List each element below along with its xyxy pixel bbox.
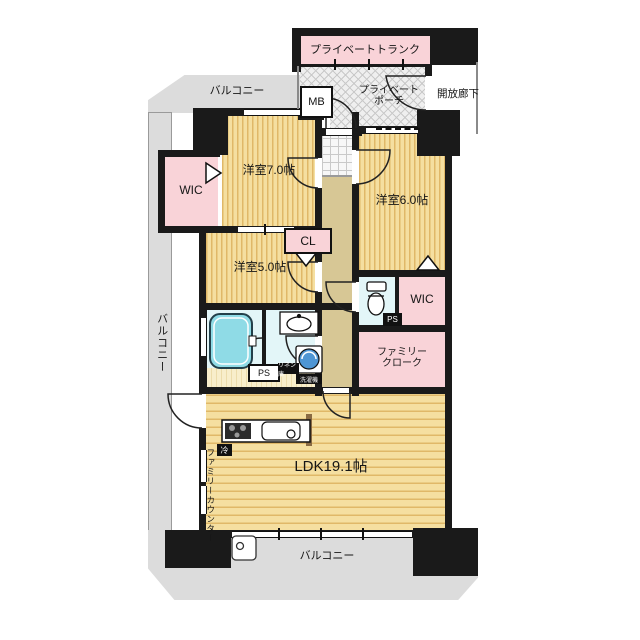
mb-label: MB bbox=[308, 96, 325, 108]
kitchen-counter-edge bbox=[306, 414, 312, 446]
column bbox=[430, 28, 478, 65]
label-balcony-top: バルコニー bbox=[206, 85, 268, 98]
room-genkan-tile bbox=[322, 130, 352, 176]
label-porch-2: ポーチ bbox=[350, 96, 428, 108]
ps-lower-label: PS bbox=[258, 368, 270, 378]
wall bbox=[158, 150, 220, 157]
washer-label: 洗濯機 bbox=[300, 375, 318, 384]
ps-upper-box: PS bbox=[383, 313, 402, 326]
label-family-counter: ファミリーカウンター bbox=[205, 448, 215, 536]
wall bbox=[352, 270, 452, 277]
fridge-label: 冷 bbox=[221, 445, 229, 456]
column bbox=[165, 530, 231, 568]
floor-plan: MB CL PS PS リネン庫 洗濯機 冷 プライベートトランク バルコニー … bbox=[0, 0, 640, 640]
cl-box: CL bbox=[284, 228, 332, 254]
column bbox=[413, 528, 478, 576]
washer-box-label: 洗濯機 bbox=[296, 374, 322, 384]
porch-boundary-dashed bbox=[376, 128, 420, 130]
window bbox=[200, 318, 207, 356]
label-bedroom-6: 洋室6.0帖 bbox=[366, 194, 438, 208]
wall bbox=[158, 150, 165, 233]
column bbox=[193, 108, 228, 155]
label-balcony-left: バルコニー bbox=[155, 298, 168, 388]
wall bbox=[300, 64, 430, 67]
wall bbox=[262, 310, 266, 368]
label-balcony-bottom: バルコニー bbox=[292, 550, 362, 563]
label-bedroom-5: 洋室5.0帖 bbox=[224, 261, 296, 275]
wall bbox=[352, 325, 452, 332]
label-wic-left: WIC bbox=[171, 184, 211, 198]
fridge-box: 冷 bbox=[217, 444, 232, 456]
window-sliding bbox=[232, 531, 412, 538]
label-ldk: LDK19.1帖 bbox=[288, 458, 374, 475]
porch-edge bbox=[297, 66, 299, 114]
linen-box: リネン庫 bbox=[278, 363, 299, 374]
label-family-cloak-2: クローク bbox=[367, 358, 437, 370]
genkan-step bbox=[322, 175, 352, 177]
mb-box: MB bbox=[300, 86, 333, 118]
ps-lower-box: PS bbox=[248, 364, 280, 382]
wall bbox=[199, 303, 359, 310]
label-wic-right: WIC bbox=[402, 293, 442, 307]
ps-upper-label: PS bbox=[387, 315, 398, 324]
label-private-trunk: プライベートトランク bbox=[305, 44, 425, 57]
label-family-cloak-1: ファミリー bbox=[367, 347, 437, 359]
wall bbox=[199, 226, 206, 310]
cl-label: CL bbox=[300, 234, 315, 248]
room-hallway bbox=[322, 176, 352, 394]
label-bedroom-7: 洋室7.0帖 bbox=[233, 164, 305, 178]
label-open-corridor: 開放廊下 bbox=[432, 88, 484, 100]
label-porch-1: プライベート bbox=[350, 85, 428, 97]
room-bathroom bbox=[206, 310, 262, 368]
door-arc-ldk-balcony bbox=[168, 394, 202, 428]
